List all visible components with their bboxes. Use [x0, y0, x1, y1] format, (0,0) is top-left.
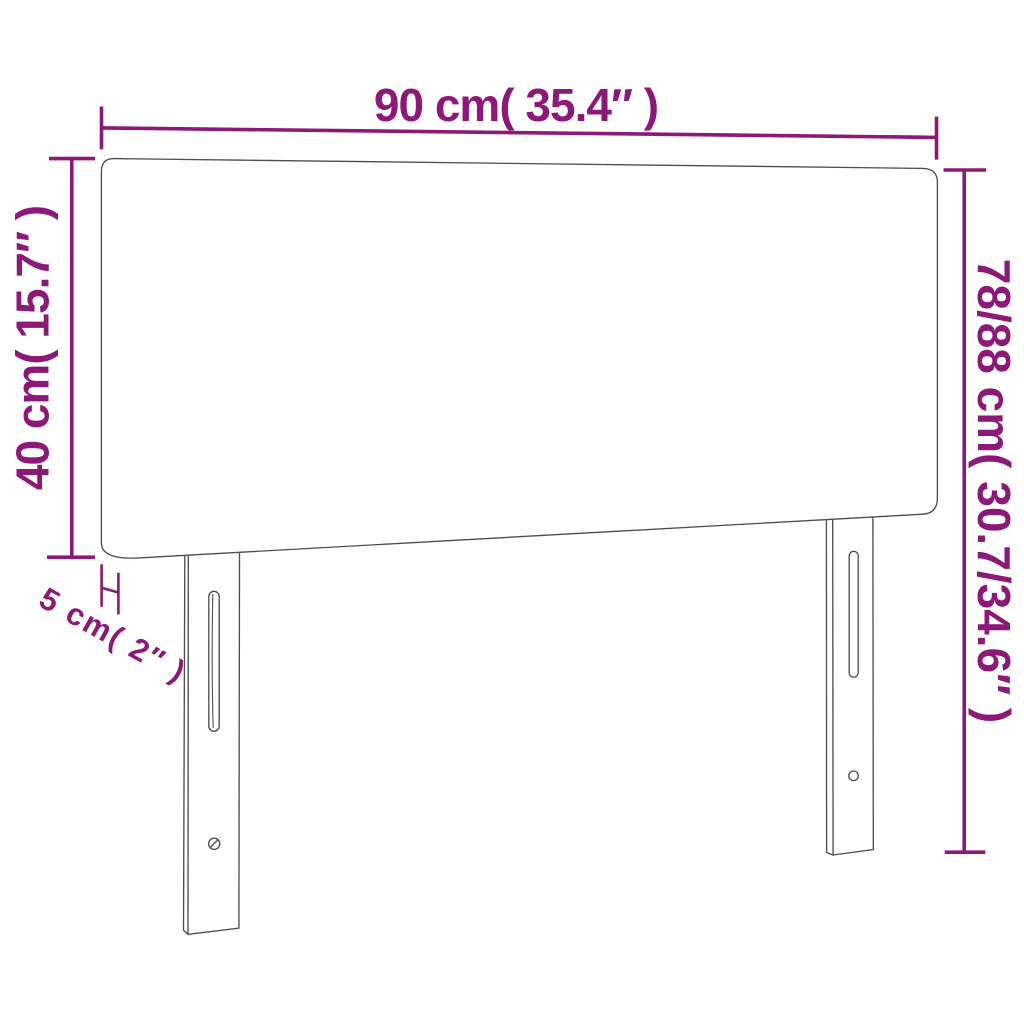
svg-text:90 cm( 35.4″ ): 90 cm( 35.4″ ) [374, 79, 658, 131]
svg-text:78/88 cm( 30.7/34.6″ ): 78/88 cm( 30.7/34.6″ ) [968, 259, 1020, 723]
svg-text:40 cm( 15.7″ ): 40 cm( 15.7″ ) [7, 206, 59, 490]
